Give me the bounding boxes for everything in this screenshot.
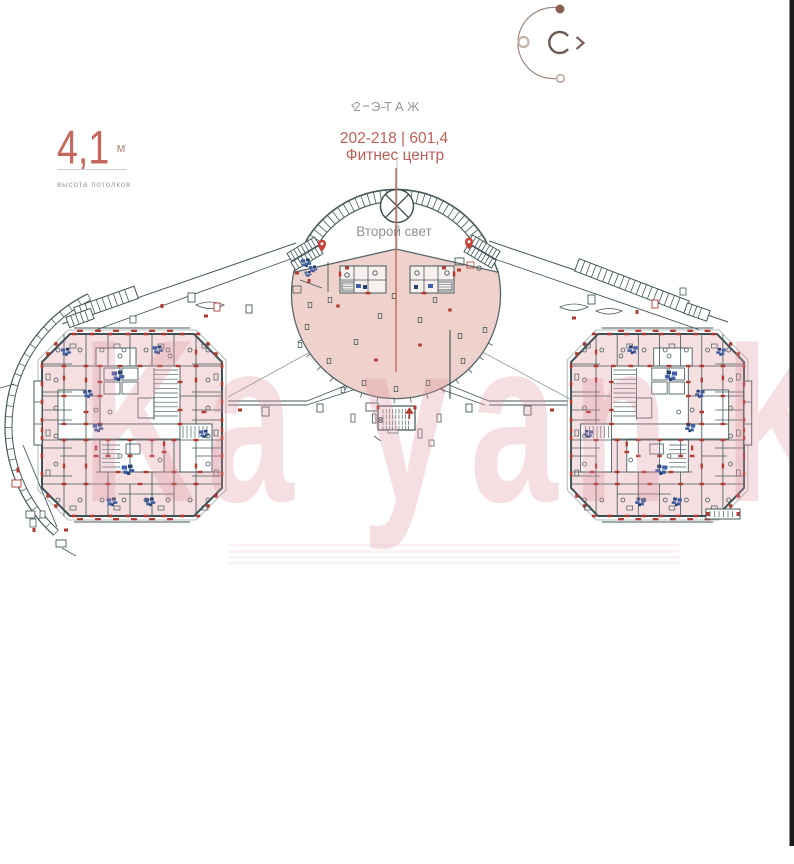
svg-text:202-218 | 601,4: 202-218 | 601,4 — [340, 130, 449, 147]
svg-text:n: n — [572, 292, 668, 552]
svg-text:a: a — [206, 292, 295, 552]
svg-text:K: K — [82, 292, 196, 552]
svg-text:y: y — [362, 292, 450, 552]
svg-text:4,1: 4,1 — [57, 122, 109, 175]
svg-text:2 ЭТАЖ: 2 ЭТАЖ — [353, 99, 422, 114]
svg-text:K: K — [725, 292, 794, 552]
svg-text:Фитнес центр: Фитнес центр — [346, 147, 444, 164]
svg-text:Второй свет: Второй свет — [356, 224, 431, 239]
svg-text:a: a — [470, 292, 559, 552]
svg-text:высота потолков: высота потолков — [57, 180, 131, 189]
svg-text:м: м — [117, 140, 126, 155]
